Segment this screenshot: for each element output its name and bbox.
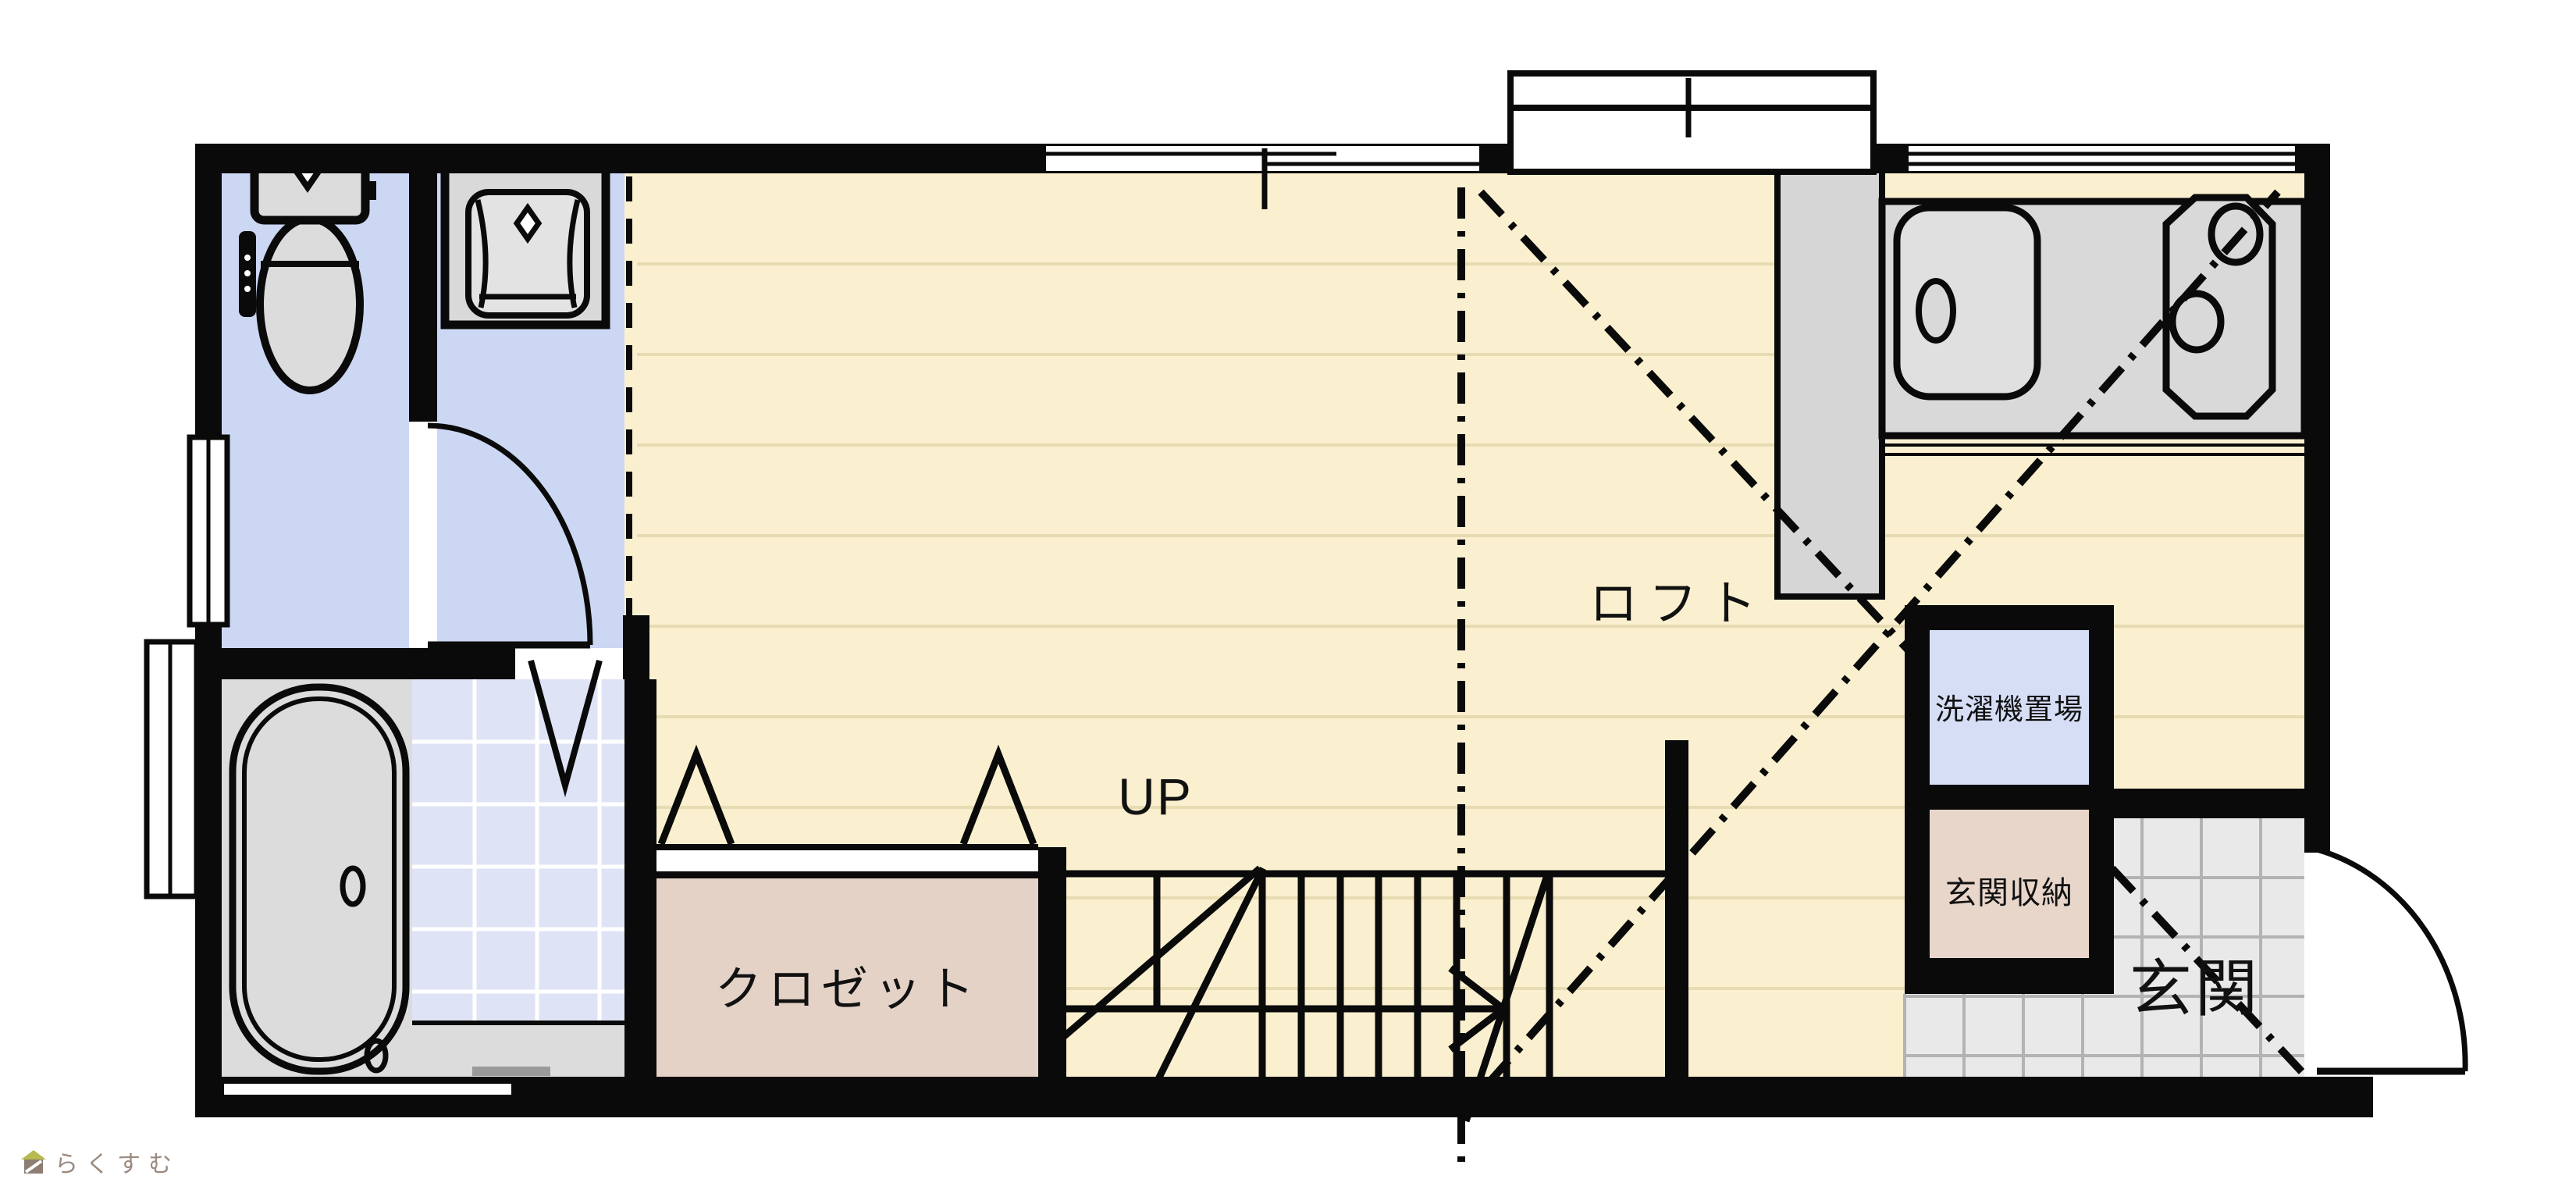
room-label-closet: クロゼット — [715, 952, 980, 1020]
kitchen-sink-icon — [1897, 208, 2037, 397]
bathtub-icon — [233, 687, 406, 1071]
room-label-entrance-storage: 玄関収納 — [1945, 867, 2073, 913]
refrigerator-space — [1777, 170, 1882, 597]
room-label-washer-area: 洗濯機置場 — [1935, 686, 2083, 728]
entrance-door-icon — [2304, 850, 2465, 1077]
room-label-loft: ロフト — [1589, 564, 1767, 634]
window-top-bay — [1510, 73, 1873, 172]
house-logo-icon — [20, 1149, 47, 1175]
window-left-bath — [147, 642, 197, 896]
watermark: らくすむ — [20, 1145, 180, 1179]
floor-plan: ロフト UP クロゼット 洗濯機置場 玄関収納 玄関 らくすむ — [0, 0, 2576, 1204]
bath-threshold — [472, 1067, 550, 1076]
window-bottom-bath — [224, 1084, 511, 1095]
window-left-washroom — [190, 437, 227, 625]
room-label-entrance: 玄関 — [2129, 939, 2261, 1029]
window-top-kitchen — [1909, 146, 2295, 171]
watermark-text: らくすむ — [55, 1145, 180, 1179]
stairs-label-up: UP — [1118, 767, 1193, 826]
storage-block — [1905, 605, 2114, 994]
stove-icon — [2166, 198, 2272, 416]
vanity-sink-icon — [445, 156, 606, 325]
